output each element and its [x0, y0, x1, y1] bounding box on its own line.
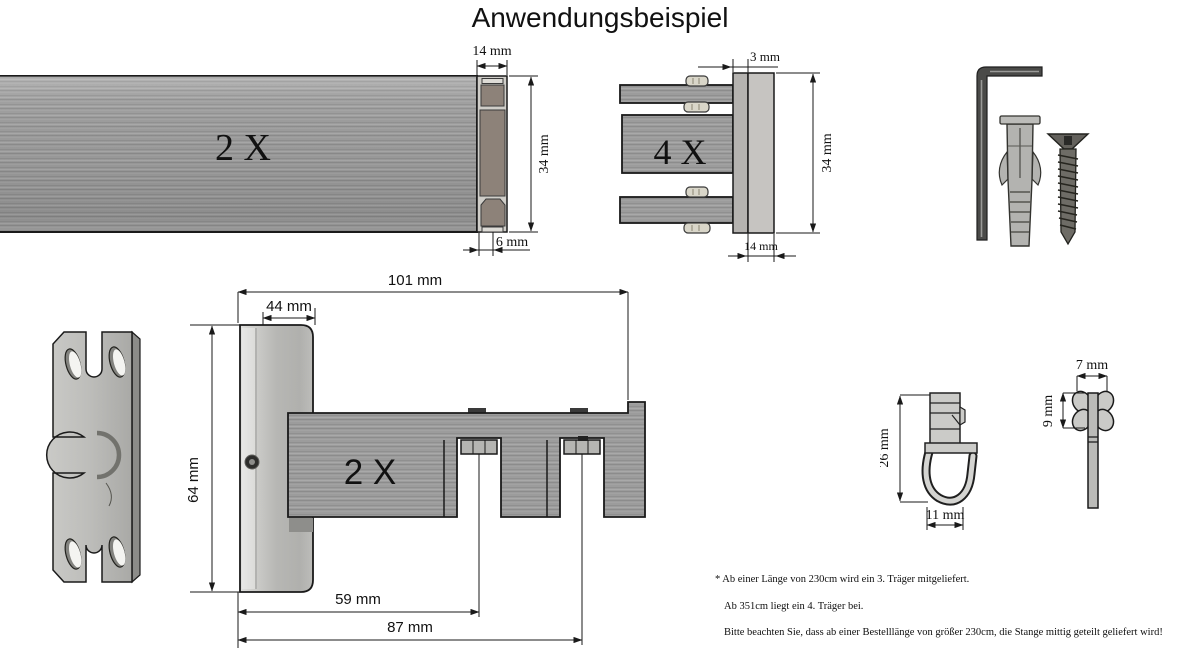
note-line-1: * Ab einer Länge von 230cm wird ein 3. T…: [715, 574, 969, 585]
bracket-quantity-label: 2 X: [344, 453, 397, 492]
dim-rod-height: 34 mm: [537, 134, 552, 173]
dim-glider-height: 9 mm: [1041, 395, 1056, 427]
mounting-plate-diagram: [40, 325, 150, 590]
bracket-arm: 2 X: [288, 402, 645, 517]
dim-glider-width: 7 mm: [1076, 358, 1108, 373]
end-connector: 4 X: [620, 73, 774, 233]
end-connector-diagram: 4 X 3 mm 34 mm 14 mm: [600, 40, 860, 270]
dim-plate-depth: 3 mm: [750, 49, 780, 64]
dim-second-slot: 87 mm: [387, 619, 433, 636]
note-line-3: Bitte beachten Sie, dass ab einer Bestel…: [724, 627, 1163, 638]
mounting-hardware: [950, 50, 1200, 260]
connector-quantity-label: 4 X: [654, 132, 707, 172]
page-title: Anwendungsbeispiel: [0, 2, 1200, 34]
rod-profile: 2 X: [0, 76, 477, 232]
glider-hook-icon: [925, 393, 977, 501]
dim-hook-width: 11 mm: [926, 508, 965, 523]
dim-cap-width: 14 mm: [472, 44, 511, 59]
dim-rod-stem: 6 mm: [496, 235, 528, 250]
screw-icon: [1048, 134, 1088, 244]
wall-anchor-icon: [999, 116, 1040, 246]
glider-hook-diagram: 26 mm 11 mm: [880, 355, 1010, 540]
dim-total-length: 101 mm: [388, 272, 442, 289]
glider-top-view-diagram: 7 mm 9 mm: [1035, 355, 1135, 515]
dim-bracket-height: 64 mm: [185, 457, 202, 503]
rod-profile-diagram: 2 X 14 mm 34 mm 6 mm: [0, 40, 560, 270]
rod-end-cap: [477, 76, 507, 232]
note-line-2: Ab 351cm liegt ein 4. Träger bei.: [724, 601, 863, 612]
dim-first-slot: 59 mm: [335, 591, 381, 608]
dim-connector-width: 14 mm: [744, 239, 778, 253]
wall-bracket-diagram: 2 X 101 mm 44 mm 64 mm 59 mm 87 mm: [185, 270, 665, 655]
dim-connector-height: 34 mm: [820, 133, 835, 172]
application-example-diagram: Anwendungsbeispiel: [0, 0, 1200, 655]
glider-butterfly-icon: [1069, 388, 1118, 508]
rod-quantity-label: 2 X: [215, 127, 271, 169]
mounting-plate-icon: [47, 332, 140, 582]
dim-base-width: 44 mm: [266, 298, 312, 315]
arm-shadow: [289, 518, 313, 532]
dim-hook-height: 26 mm: [880, 428, 892, 467]
